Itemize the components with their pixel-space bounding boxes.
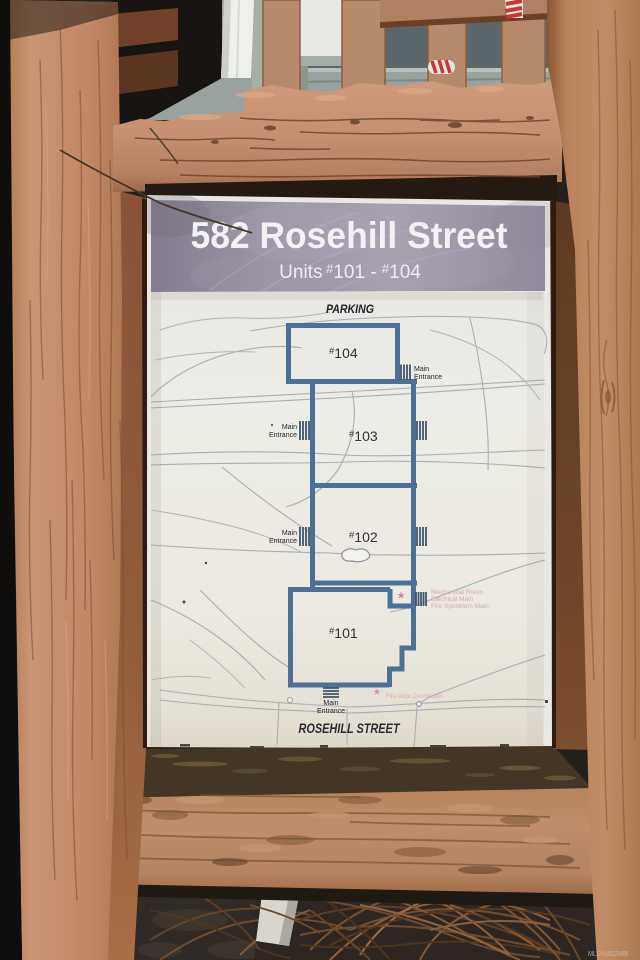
svg-text:MLS®1022489: MLS®1022489 <box>588 949 628 958</box>
svg-text:Main: Main <box>282 424 297 431</box>
svg-text:Fire Sprinklers Main: Fire Sprinklers Main <box>431 603 489 610</box>
svg-text:Entrance: Entrance <box>269 538 297 545</box>
svg-text:Entrance: Entrance <box>414 374 442 381</box>
svg-text:Main: Main <box>414 366 429 373</box>
svg-text:#103: #103 <box>349 428 378 444</box>
svg-text:Mechanical Room: Mechanical Room <box>431 589 483 596</box>
svg-text:582 Rosehill Street: 582 Rosehill Street <box>191 215 508 256</box>
svg-text:Units #101 - #104: Units #101 - #104 <box>279 261 421 283</box>
svg-text:ROSEHILL STREET: ROSEHILL STREET <box>299 721 401 736</box>
svg-text:*: * <box>398 589 405 608</box>
svg-text:PARKING: PARKING <box>326 304 374 316</box>
svg-text:#104: #104 <box>329 345 358 361</box>
svg-text:*: * <box>374 687 380 704</box>
svg-text:Fire Dept Connection: Fire Dept Connection <box>386 694 443 700</box>
svg-text:Entrance: Entrance <box>317 708 345 715</box>
svg-text:#102: #102 <box>349 529 378 545</box>
svg-text:Electrical Main: Electrical Main <box>431 596 474 603</box>
svg-text:Main: Main <box>323 700 338 707</box>
svg-text:Entrance: Entrance <box>269 432 297 439</box>
svg-text:Main: Main <box>282 530 297 537</box>
svg-text:#101: #101 <box>329 625 358 641</box>
